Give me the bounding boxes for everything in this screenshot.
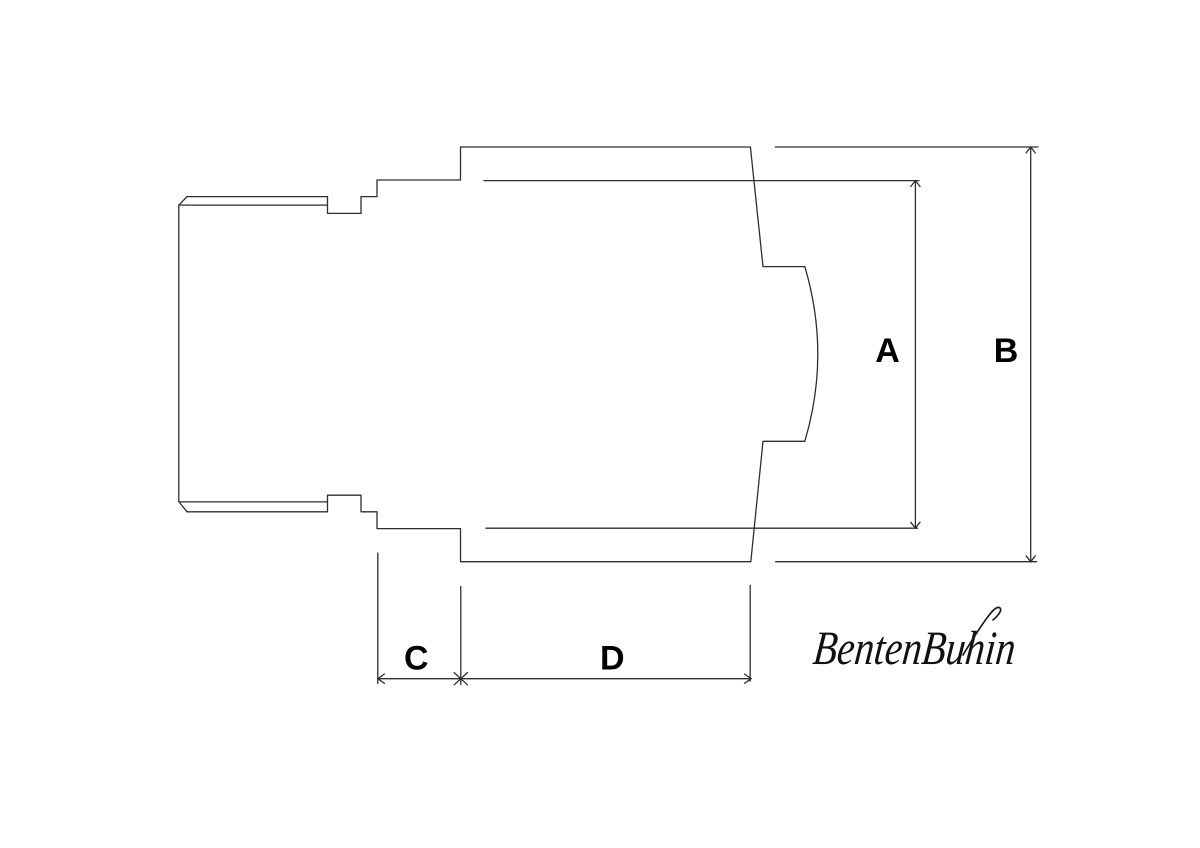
svg-text:B: B [994,332,1019,370]
svg-text:A: A [875,332,900,370]
svg-text:C: C [404,640,429,678]
svg-text:D: D [600,640,625,678]
svg-text:BentenBuhin: BentenBuhin [811,622,1019,675]
